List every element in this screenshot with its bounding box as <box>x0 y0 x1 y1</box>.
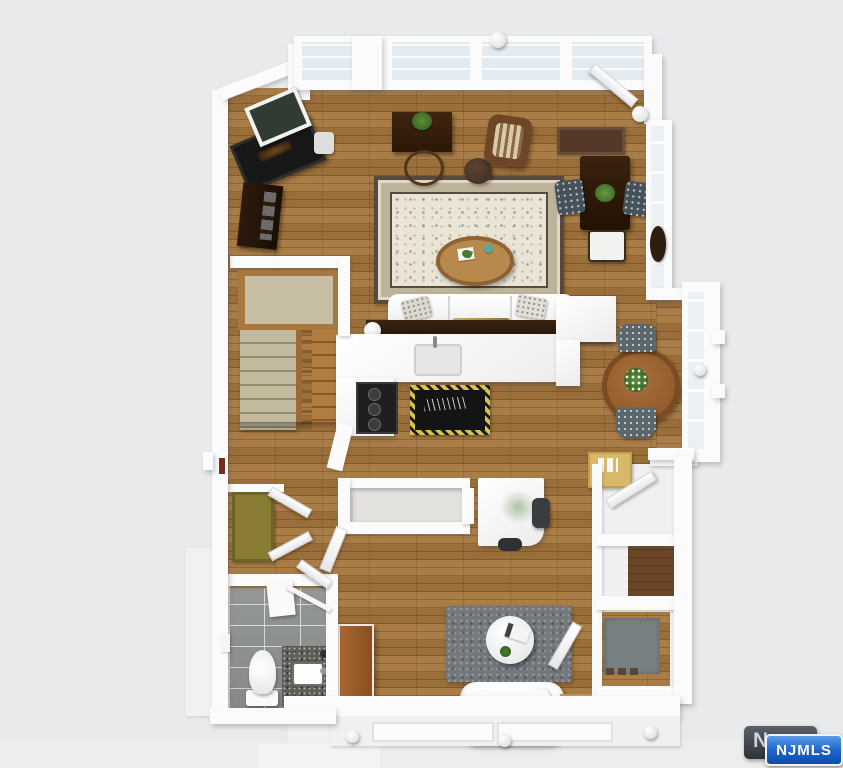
foyer-doormat <box>604 618 660 674</box>
stair-right-wall <box>338 256 350 336</box>
top-window-pier <box>352 36 382 90</box>
stair-flight-wood <box>312 330 338 430</box>
exterior-step-3 <box>258 744 380 768</box>
bottom-wall-bump-3 <box>644 726 657 739</box>
corner-wall-sconce <box>632 106 648 122</box>
bottom-outer-wall <box>284 696 680 716</box>
towel-bar <box>221 634 230 652</box>
peninsula-cabinet-leg <box>556 340 580 386</box>
office-stool <box>498 538 522 551</box>
left-outer-wall <box>212 90 228 714</box>
office-chair <box>532 498 550 528</box>
kitchen-mat <box>410 385 490 435</box>
top-wall-pillar <box>490 32 506 48</box>
table-small-plant <box>500 646 511 657</box>
dining-centerpiece-plant <box>595 184 615 202</box>
coat-closet-floor <box>628 546 674 598</box>
sofa-cushion-divider <box>448 296 450 322</box>
bottom-window-sill-1 <box>372 722 494 742</box>
cooktop-burner-3 <box>368 418 381 431</box>
njmls-watermark-badge: NJMLS <box>765 734 843 766</box>
hall-red-wall-art <box>219 458 225 474</box>
armchair-cushion <box>492 122 524 160</box>
bottom-wall-bump-2 <box>498 734 511 747</box>
bathroom-bottom-outer-wall <box>210 708 336 724</box>
stair-top-wall <box>230 256 350 268</box>
nook-flower-centerpiece <box>624 368 648 392</box>
dining-runner-rug <box>557 127 625 155</box>
floorplan-canvas: N NJMLS <box>0 0 843 768</box>
nook-chair-bottom <box>616 408 656 438</box>
desk-plant <box>412 112 432 130</box>
bay-bump-1 <box>712 330 725 344</box>
stair-baluster-railing <box>302 330 312 430</box>
bay-bump-2 <box>712 384 725 398</box>
dining-chair-left <box>554 178 586 215</box>
bottom-wall-bump-1 <box>346 730 359 743</box>
railing-top-bar <box>338 478 470 488</box>
side-table-with-vase <box>314 132 334 154</box>
closet-crossbar-top <box>596 534 684 546</box>
kitchen-faucet <box>433 336 437 348</box>
dining-chair-bottom <box>588 230 626 262</box>
foyer-shoe-row <box>606 668 640 675</box>
desk-green-decal <box>500 490 536 524</box>
stair-landing-carpet <box>245 276 333 324</box>
cooktop-burner-1 <box>368 388 381 401</box>
bottom-window-sill-2 <box>497 722 613 742</box>
nook-chair-top <box>618 324 656 352</box>
right-window-glass <box>651 126 664 294</box>
njmls-watermark-label: NJMLS <box>776 742 832 759</box>
kitchen-sink <box>414 344 462 376</box>
desk-chair <box>404 150 444 186</box>
oval-wall-mirror <box>650 226 666 262</box>
railing-connector <box>462 488 474 524</box>
vanity-sink <box>292 662 324 686</box>
sofa-cushion-divider <box>510 296 512 322</box>
cooktop-burner-2 <box>368 403 381 416</box>
stairwell-depth-shadow <box>240 422 338 432</box>
oval-coffee-table <box>436 236 514 286</box>
bay-wall-sconce <box>694 364 706 376</box>
coffee-table-cup <box>484 244 493 253</box>
railing-bottom-bar <box>338 522 470 534</box>
corridor-left-wall <box>592 464 602 704</box>
left-wall-bump <box>203 452 213 470</box>
right-lower-outer-wall <box>674 456 692 704</box>
closet-crossbar-bottom <box>596 596 684 610</box>
toilet-bowl <box>249 650 276 694</box>
stair-flight-carpeted <box>240 330 296 430</box>
stairwell-opening <box>350 488 468 522</box>
peninsula-cabinet-top <box>556 296 616 342</box>
